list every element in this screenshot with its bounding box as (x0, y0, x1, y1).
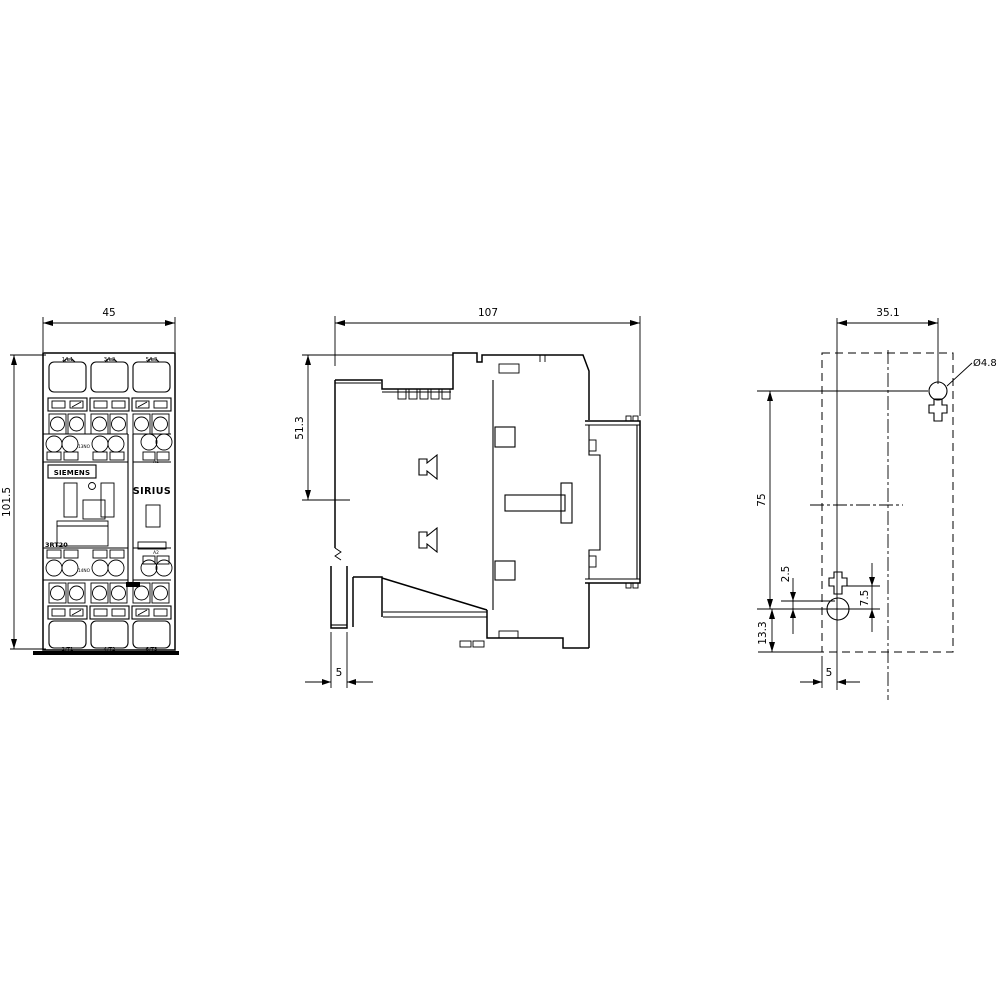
coil-a1-label: A1 (153, 459, 159, 465)
drill-plan-view: 35.1 Ø4.8 75 (756, 307, 997, 700)
front-bottom-terminals: 2/T1 4/T2 6/T3 (48, 583, 171, 653)
front-top-terminals: 1/L1 3/L2 5/L3 (48, 357, 171, 434)
front-aux-lower-strip: 14NO (43, 548, 128, 580)
side-width-dimension: 107 (335, 307, 640, 416)
drill-keyhole-offset-text: 7.5 (859, 590, 871, 607)
din-bracket (585, 421, 640, 583)
reference-lines (757, 391, 928, 652)
keyhole-bottom (827, 572, 849, 620)
front-width-dim-text: 45 (102, 307, 115, 319)
technical-drawing: 45 101.5 1/L1 3/L2 5/L3 (0, 0, 1000, 1000)
terminal-label-1L1: 1/L1 (62, 357, 74, 363)
drill-width-dimension: 35.1 (837, 307, 938, 326)
terminal-label-3L2: 3/L2 (104, 357, 116, 363)
terminal-funnel-upper (419, 455, 437, 479)
series-label: SIRIUS (133, 486, 171, 497)
drill-bottom-offset-dimension: 13.3 (757, 609, 775, 652)
hole-diameter-text: Ø4.8 (973, 357, 997, 369)
drill-width-dim-text: 35.1 (876, 307, 899, 319)
front-view: 45 101.5 1/L1 3/L2 5/L3 (1, 307, 179, 655)
front-width-dimension: 45 (43, 307, 175, 352)
side-foot-dimension: 5 (305, 632, 373, 688)
side-view: 107 51.3 5 (294, 307, 640, 688)
side-foot-dim-text: 5 (336, 667, 343, 679)
side-silhouette (331, 353, 640, 648)
drill-keyhole-offset-dimension: 7.5 (859, 563, 875, 632)
mounting-handle (505, 495, 565, 511)
keyhole-top (929, 382, 947, 421)
axis-centerlines (810, 350, 903, 700)
drill-vspacing-dimension: 75 (756, 391, 773, 609)
front-height-dim-text: 101.5 (1, 487, 13, 517)
drill-edge-offset-text: 5 (826, 667, 833, 679)
terminal-label-2T1: 2/T1 (62, 647, 74, 653)
side-height-dim-text: 51.3 (294, 416, 306, 439)
side-height-dimension: 51.3 (294, 355, 453, 500)
terminal-label-4T2: 4/T2 (104, 647, 116, 653)
device-outline-dashed (822, 353, 953, 652)
drill-bottom-offset-text: 13.3 (757, 621, 769, 644)
drill-edge-offset-dimension: 5 (800, 656, 860, 688)
side-width-dim-text: 107 (478, 307, 498, 319)
aux-upper-label: 13NO (78, 444, 91, 450)
front-mechanism: SIEMENS 3RT20 (45, 465, 114, 549)
brand-label: SIEMENS (54, 469, 90, 477)
rail-clip-foot (331, 566, 347, 628)
hole-diameter-callout: Ø4.8 (947, 357, 997, 386)
front-coil-column: A1 SIRIUS A2 (126, 434, 172, 587)
hole-centerlines (837, 318, 938, 690)
terminal-label-5L3: 5/L3 (146, 357, 158, 363)
aux-lower-label: 14NO (78, 568, 91, 574)
front-aux-upper-strip: 13NO (43, 434, 128, 462)
drill-slot-offset-dimension: 2.5 (780, 566, 796, 634)
dimension-drawing-page: 45 101.5 1/L1 3/L2 5/L3 (0, 0, 1000, 1000)
front-height-dimension: 101.5 (1, 355, 46, 649)
terminal-funnel-lower (419, 528, 437, 552)
drill-vspacing-text: 75 (756, 493, 768, 506)
drill-slot-offset-text: 2.5 (780, 566, 792, 583)
terminal-label-6T3: 6/T3 (146, 647, 158, 653)
coil-a2-label: A2 (153, 550, 159, 556)
